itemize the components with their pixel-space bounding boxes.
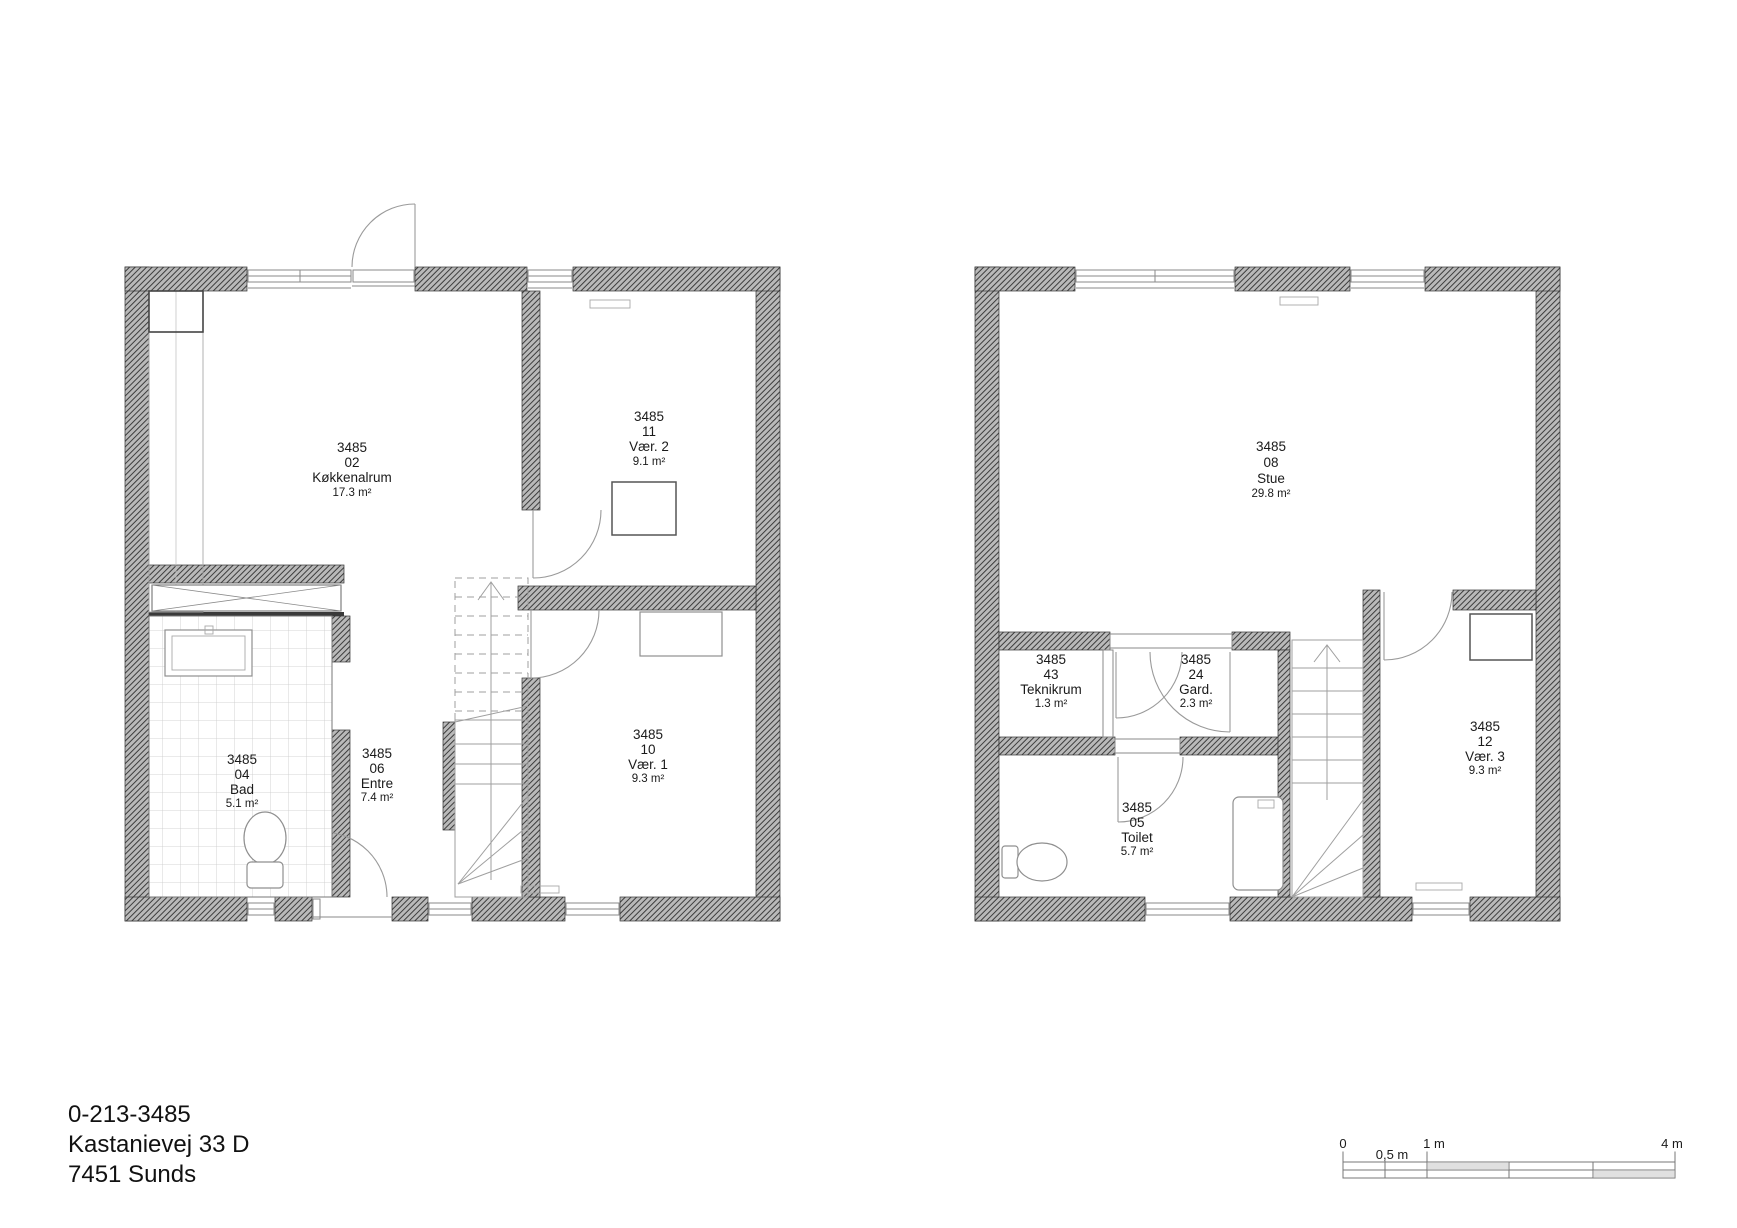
room-area: 9.3 m² [1469,765,1502,777]
room-name: Teknikrum [1020,682,1082,697]
wall-right [1536,267,1560,921]
wall-top [125,267,247,291]
wall-left [125,267,149,921]
room-area: 29.8 m² [1252,488,1291,500]
room-area: 9.3 m² [632,773,665,785]
wardrobe [640,612,722,656]
room-name: Bad [230,782,254,797]
wall-bad-right [332,730,350,897]
wall-stue-vaer3 [1453,590,1536,610]
door-frame [1103,650,1113,737]
wardrobe [1470,614,1532,660]
wall-gard-top [1232,632,1290,650]
room-number: 02 [344,455,359,470]
wall-vaer2-vaer1 [518,586,756,610]
window [1146,903,1229,915]
scale-label-4m: 4 m [1661,1136,1683,1151]
room-number: 12 [1477,734,1492,749]
wall-above-wardrobe [149,565,344,583]
room-area: 5.1 m² [226,798,259,810]
door-frame [1115,739,1180,753]
room-number: 04 [234,767,250,782]
wall-teknikrum-top [999,632,1110,650]
wall-right [756,267,780,921]
postal-city-line: 7451 Sunds [68,1161,196,1188]
scale-label-0: 0 [1339,1136,1346,1151]
toilet-icon [1002,843,1067,881]
wall-bottom [125,897,247,921]
window [248,903,274,915]
wall-bottom [620,897,780,921]
room-name: Vær. 1 [628,757,668,772]
room-area: 17.3 m² [333,487,372,499]
wall-top [415,267,527,291]
room-name: Køkkenalrum [312,470,392,485]
wall-kitchen-vaer2 [522,291,540,510]
room-number: 43 [1043,667,1058,682]
window [429,903,471,915]
room-area: 2.3 m² [1180,698,1213,710]
wardrobe [612,482,676,535]
room-number: 24 [1188,667,1204,682]
vanity-unit [165,626,252,676]
wall-stair-left [443,722,455,830]
wall-bad-right [332,616,350,662]
room-project-number: 3485 [1036,652,1066,667]
wall-stair-right [1363,590,1380,897]
room-number: 06 [369,761,384,776]
room-project-number: 3485 [337,440,367,455]
window [566,903,619,915]
built-in-wardrobe [152,585,341,611]
room-number: 10 [640,742,655,757]
room-area: 7.4 m² [361,792,394,804]
wall-top [1425,267,1560,291]
room-area: 1.3 m² [1035,698,1068,710]
room-project-number: 3485 [634,409,664,424]
floor-plan-sheet: 3485 02 Køkkenalrum 17.3 m² 3485 11 Vær.… [0,0,1737,1228]
room-name: Gard. [1179,682,1213,697]
scale-label-0-5m: 0,5 m [1376,1147,1409,1162]
wall-bottom [1470,897,1560,921]
door-frame [1110,634,1232,648]
room-number: 11 [642,424,656,439]
room-project-number: 3485 [1181,652,1211,667]
drawing-number: 0-213-3485 [68,1101,191,1128]
wall-bottom [392,897,428,921]
room-label-vaer2: 3485 11 Vær. 2 9.1 m² [629,409,669,468]
wall-top [975,267,1075,291]
room-number: 05 [1129,815,1144,830]
room-project-number: 3485 [227,752,257,767]
address-line: Kastanievej 33 D [68,1131,249,1158]
wall-bottom [472,897,565,921]
wall-toilet-top [999,737,1115,755]
room-project-number: 3485 [362,746,392,761]
room-number: 08 [1263,455,1278,470]
room-name: Toilet [1121,830,1153,845]
floor-plan-drawing: 3485 02 Køkkenalrum 17.3 m² 3485 11 Vær.… [0,0,1737,1228]
wall-hall-vaer1 [522,678,540,897]
scale-label-1m: 1 m [1423,1136,1445,1151]
wall-bottom [975,897,1145,921]
wall-bottom [1230,897,1412,921]
room-name: Vær. 3 [1465,749,1505,764]
wall-bad-top-line [149,612,344,616]
toilet-icon [244,812,286,888]
room-project-number: 3485 [633,727,663,742]
wall-left [975,267,999,921]
wall-top [1235,267,1350,291]
room-project-number: 3485 [1122,800,1152,815]
wall-bottom [275,897,312,921]
room-name: Entre [361,776,393,791]
room-name: Vær. 2 [629,439,669,454]
room-project-number: 3485 [1256,439,1286,454]
room-area: 5.7 m² [1121,846,1154,858]
wall-top [573,267,780,291]
room-project-number: 3485 [1470,719,1500,734]
window [1413,903,1469,915]
shower-icon [1233,797,1283,890]
room-area: 9.1 m² [633,456,666,468]
wall-toilet-top [1180,737,1290,755]
room-name: Stue [1257,471,1285,486]
